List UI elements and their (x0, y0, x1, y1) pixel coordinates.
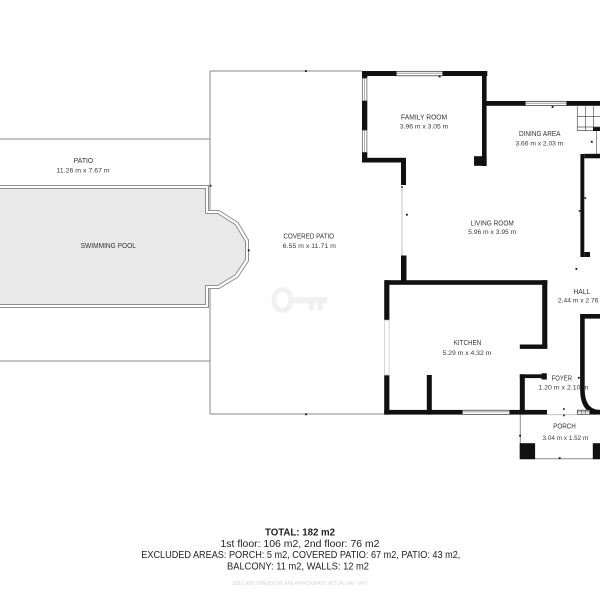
svg-text:FOYER: FOYER (552, 373, 572, 382)
svg-text:3.66 m x 2.03 m: 3.66 m x 2.03 m (516, 141, 564, 148)
svg-text:KITCHEN: KITCHEN (454, 338, 482, 347)
svg-text:PORCH: PORCH (553, 421, 576, 430)
svg-text:DINING AREA: DINING AREA (519, 129, 560, 138)
svg-text:1st floor: 106 m2, 2nd floor:: 1st floor: 106 m2, 2nd floor: 76 m2 (221, 539, 380, 550)
svg-text:5.96 m x 3.95 m: 5.96 m x 3.95 m (468, 229, 516, 236)
svg-text:FAMILY ROOM: FAMILY ROOM (401, 113, 447, 122)
svg-text:5.29 m x 4.32 m: 5.29 m x 4.32 m (443, 350, 492, 357)
svg-text:BALCONY: 11 m2, WALLS: 12 m2: BALCONY: 11 m2, WALLS: 12 m2 (227, 561, 369, 572)
svg-text:TOTAL: 182 m2: TOTAL: 182 m2 (265, 528, 335, 539)
svg-text:3.96 m x 3.05 m: 3.96 m x 3.05 m (400, 123, 449, 130)
svg-text:LIVING ROOM: LIVING ROOM (471, 219, 514, 228)
svg-text:11.26 m x 7.67 m: 11.26 m x 7.67 m (56, 168, 110, 175)
svg-text:HALL: HALL (573, 287, 590, 296)
svg-text:6.55 m x 11.71 m: 6.55 m x 11.71 m (283, 243, 337, 250)
svg-text:SIZES AND DIMENSIONS ARE APPRO: SIZES AND DIMENSIONS ARE APPROXIMATE, AC… (232, 581, 369, 587)
svg-text:PATIO: PATIO (74, 156, 94, 165)
svg-text:COVERED PATIO: COVERED PATIO (283, 232, 334, 241)
svg-text:EXCLUDED AREAS: PORCH: 5 m2, C: EXCLUDED AREAS: PORCH: 5 m2, COVERED PAT… (141, 550, 460, 561)
svg-text:3.04 m x 1.52 m: 3.04 m x 1.52 m (543, 435, 589, 442)
svg-text:SWIMMING POOL: SWIMMING POOL (81, 241, 136, 250)
svg-text:2.44 m x 2.76 m: 2.44 m x 2.76 m (558, 297, 600, 304)
